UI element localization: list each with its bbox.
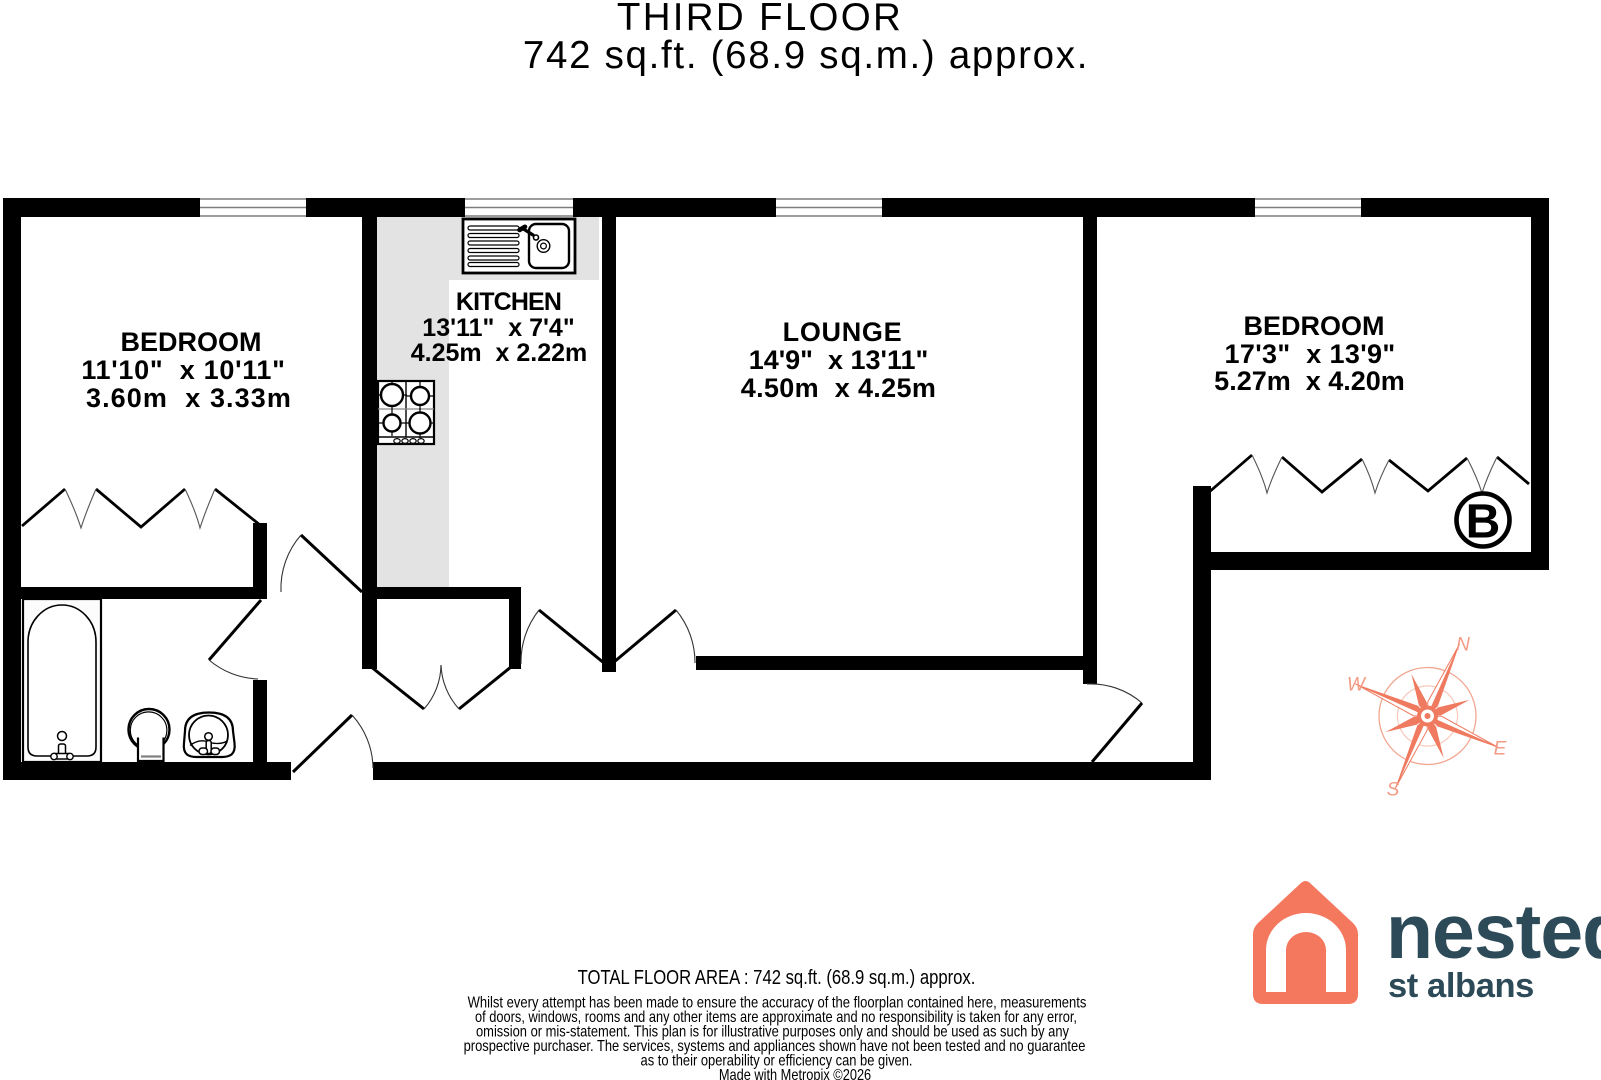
svg-text:13'11" x 7'4": 13'11" x 7'4" bbox=[422, 314, 574, 342]
svg-text:KITCHEN: KITCHEN bbox=[456, 288, 561, 316]
svg-text:BEDROOM: BEDROOM bbox=[1244, 311, 1385, 341]
svg-text:N: N bbox=[1456, 635, 1470, 656]
svg-text:14'9" x 13'11": 14'9" x 13'11" bbox=[749, 345, 929, 375]
svg-text:BEDROOM: BEDROOM bbox=[121, 327, 262, 357]
svg-text:LOUNGE: LOUNGE bbox=[783, 317, 903, 347]
svg-text:st albans: st albans bbox=[1388, 967, 1534, 1005]
svg-text:E: E bbox=[1494, 739, 1507, 760]
svg-text:S: S bbox=[1387, 780, 1400, 801]
svg-text:Made with Metropix ©2026: Made with Metropix ©2026 bbox=[719, 1066, 872, 1080]
svg-text:4.50m x 4.25m: 4.50m x 4.25m bbox=[741, 373, 937, 403]
svg-text:5.27m x 4.20m: 5.27m x 4.20m bbox=[1214, 366, 1405, 396]
svg-text:W: W bbox=[1347, 675, 1367, 696]
svg-text:3.60m x 3.33m: 3.60m x 3.33m bbox=[86, 383, 292, 413]
svg-text:B: B bbox=[1466, 496, 1501, 549]
svg-text:nested: nested bbox=[1386, 889, 1601, 975]
svg-text:11'10" x 10'11": 11'10" x 10'11" bbox=[81, 355, 285, 385]
svg-text:17'3" x 13'9": 17'3" x 13'9" bbox=[1225, 339, 1396, 369]
svg-text:TOTAL FLOOR AREA : 742 sq.ft.: TOTAL FLOOR AREA : 742 sq.ft. (68.9 sq.m… bbox=[578, 965, 976, 988]
svg-text:4.25m x 2.22m: 4.25m x 2.22m bbox=[411, 339, 588, 367]
svg-text:742 sq.ft. (68.9 sq.m.) approx: 742 sq.ft. (68.9 sq.m.) approx. bbox=[523, 34, 1089, 77]
